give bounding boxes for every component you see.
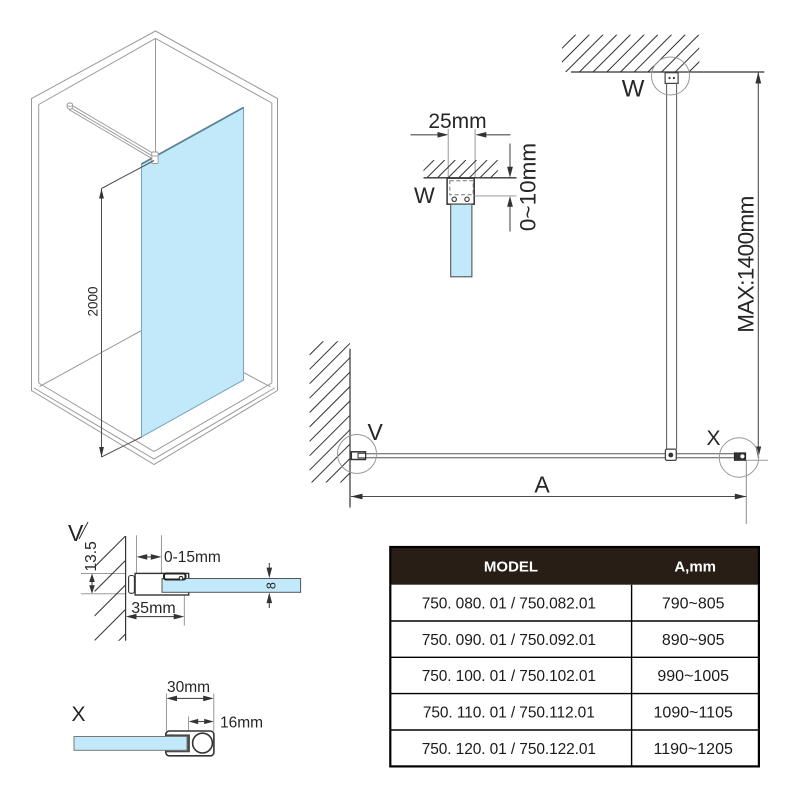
svg-text:1190~1205: 1190~1205 [654,741,733,758]
svg-text:750. 120. 01 / 750.122.01: 750. 120. 01 / 750.122.01 [422,741,596,758]
svg-text:V: V [68,520,84,546]
svg-text:1090~1105: 1090~1105 [654,704,733,721]
svg-text:16mm: 16mm [220,715,263,732]
svg-text:MODEL: MODEL [484,559,538,576]
svg-text:750. 080. 01 / 750.082.01: 750. 080. 01 / 750.082.01 [422,596,596,613]
svg-text:A: A [534,472,550,498]
svg-text:0~10mm: 0~10mm [516,143,541,231]
svg-text:990~1005: 990~1005 [657,668,729,685]
svg-text:35mm: 35mm [131,600,175,617]
svg-text:X: X [72,703,86,726]
svg-text:2000: 2000 [86,286,101,316]
svg-text:X: X [707,427,721,450]
svg-text:W: W [622,76,645,103]
svg-text:25mm: 25mm [428,110,486,133]
svg-text:750. 090. 01 / 750.092.01: 750. 090. 01 / 750.092.01 [422,632,596,649]
svg-text:750. 100. 01 / 750.102.01: 750. 100. 01 / 750.102.01 [422,668,596,685]
svg-text:A,mm: A,mm [674,559,716,576]
svg-text:8: 8 [265,582,279,589]
svg-text:V: V [368,419,384,445]
svg-text:30mm: 30mm [167,679,210,696]
svg-text:MAX:1400mm: MAX:1400mm [734,196,759,333]
svg-text:0-15mm: 0-15mm [164,549,221,566]
svg-text:W: W [414,183,435,208]
svg-text:750. 110. 01 / 750.112.01: 750. 110. 01 / 750.112.01 [423,704,595,721]
svg-text:790~805: 790~805 [662,596,725,613]
svg-text:13.5: 13.5 [83,541,100,571]
svg-text:890~905: 890~905 [662,632,725,649]
